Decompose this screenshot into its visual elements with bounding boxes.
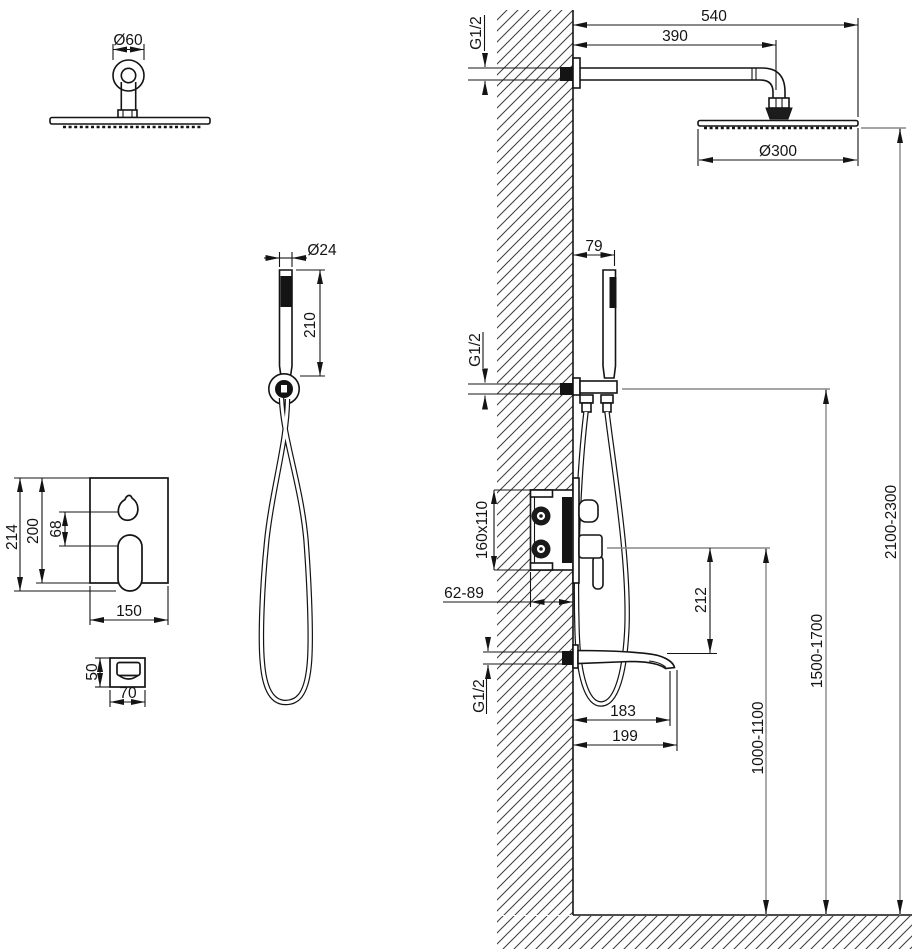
diagram-canvas: G1/2 540 390 Ø300 2100-2300 79 G1/2	[0, 0, 912, 952]
dim-handshower-length: 210	[296, 270, 325, 376]
dim-handshower-thread: G1/2	[467, 332, 485, 407]
trim-total-height-label: 214	[4, 524, 21, 550]
dim-head-diameter: Ø300	[698, 128, 858, 166]
handshower-height-range-label: 1500-1700	[809, 614, 826, 689]
valve-to-spout-label: 212	[693, 587, 710, 613]
spout-inlet-connector	[562, 651, 573, 665]
head-collar	[766, 108, 792, 119]
spout-outlet-reach-label: 183	[610, 703, 636, 720]
arm-nut	[769, 98, 789, 108]
hand-shower-head-side	[610, 277, 617, 308]
shower-head-disc-front	[50, 118, 210, 125]
head-nut-front	[118, 110, 137, 118]
arm-inlet-connector	[560, 67, 573, 81]
head-diameter-label: Ø300	[759, 143, 797, 160]
diverter-knob-side	[579, 500, 598, 522]
trim-plate-side	[573, 478, 579, 583]
overhead-shower-front	[50, 60, 210, 127]
dim-spout-height: 50	[84, 658, 110, 687]
handshower-thread-label: G1/2	[467, 333, 484, 367]
arm-flange-diameter-label: Ø60	[113, 32, 143, 49]
handshower-diameter-label: Ø24	[307, 242, 337, 259]
spout-total-reach-label: 199	[612, 728, 638, 745]
dim-trim-width: 150	[90, 586, 168, 625]
dim-arm-flange-diameter: Ø60	[113, 32, 144, 60]
arm-total-reach-label: 540	[701, 8, 727, 25]
bath-spout-front	[110, 658, 145, 687]
bracket-wall-flange	[573, 378, 580, 395]
arm-thread-label: G1/2	[468, 16, 485, 50]
shower-arm	[580, 68, 785, 98]
dim-spout-thread: G1/2	[471, 640, 488, 714]
floor-hatch	[497, 916, 912, 949]
valve-box-size-label: 160x110	[474, 500, 491, 559]
shower-head-disc-side	[698, 121, 858, 127]
lever-handle-body-side	[579, 535, 602, 558]
hand-shower-bracket	[580, 381, 617, 393]
spout-height-label: 50	[84, 663, 101, 681]
wall-hatch	[497, 10, 573, 915]
valve-depth-range-label: 62-89	[444, 585, 484, 602]
hand-shower-head-front	[281, 276, 292, 307]
dim-handshower-diameter: Ø24	[264, 242, 337, 267]
dim-79: 79	[573, 238, 615, 266]
dim-540: 540	[573, 8, 858, 117]
valve-height-range-label: 1000-1100	[750, 701, 767, 774]
arm-length-label: 390	[662, 28, 688, 45]
lever-handle-arm-side	[593, 556, 603, 589]
handshower-inlet-connector	[560, 383, 573, 395]
spout-thread-label: G1/2	[471, 679, 488, 713]
trim-width-label: 150	[116, 603, 142, 620]
dim-arm-thread: G1/2	[468, 15, 485, 94]
mixer-trim-front	[90, 478, 168, 591]
control-spacing-label: 68	[48, 520, 65, 537]
trim-height-label: 200	[25, 518, 42, 544]
spout-body-side	[578, 651, 675, 669]
dim-handshower-height-range: 1500-1700	[622, 389, 830, 915]
arm-wall-flange	[573, 58, 580, 88]
head-height-range-label: 2100-2300	[883, 485, 900, 560]
lever-handle-front	[118, 535, 142, 591]
handshower-length-label: 210	[302, 312, 319, 338]
spout-opening-front	[117, 663, 140, 676]
dim-spout-width: 70	[110, 685, 145, 707]
dim-head-height-range: 2100-2300	[861, 128, 906, 915]
spout-width-label: 70	[119, 685, 137, 702]
shower-installation-diagram: G1/2 540 390 Ø300 2100-2300 79 G1/2	[0, 0, 912, 952]
shower-hose-front	[261, 398, 310, 703]
handshower-offset-label: 79	[585, 238, 602, 255]
wall-section	[497, 10, 912, 949]
dim-212: 212	[667, 548, 717, 654]
